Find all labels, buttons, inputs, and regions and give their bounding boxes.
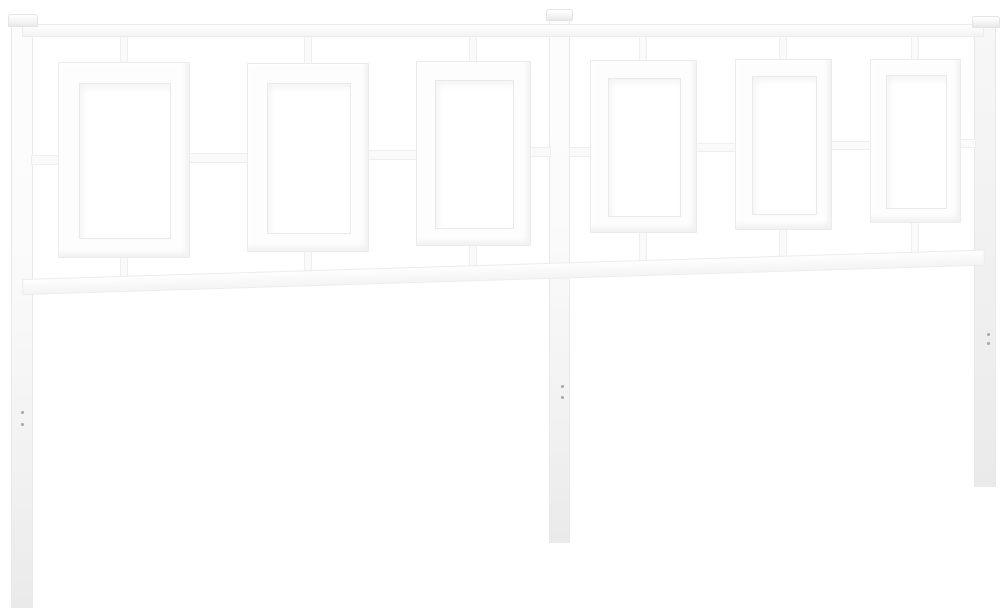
- mid-link-post-to-frame-1: [31, 155, 60, 165]
- bottom-link-frame-6: [911, 221, 919, 254]
- frame-1: [58, 62, 190, 258]
- frame-3-opening: [435, 80, 514, 229]
- center-post-cap: [546, 9, 573, 21]
- frame-5: [735, 59, 832, 230]
- top-link-frame-6: [911, 35, 919, 62]
- left-leg-screw-hole-2: [21, 423, 24, 426]
- center-leg-screw-hole-2: [561, 396, 564, 399]
- frame-1-opening: [79, 83, 171, 239]
- right-post-cap: [972, 16, 1000, 28]
- bottom-link-frame-5: [779, 228, 787, 259]
- frame-4-opening: [608, 78, 681, 217]
- mid-link-frame-5-to-6: [830, 141, 872, 150]
- top-link-frame-4: [639, 35, 647, 63]
- left-post-cap: [8, 14, 38, 27]
- frame-2-opening: [267, 83, 351, 234]
- left-leg-screw-hole-1: [21, 411, 24, 414]
- center-post-leg: [549, 20, 570, 543]
- right-leg-screw-hole-1: [987, 333, 990, 336]
- mid-link-frame-2-to-3: [367, 150, 418, 160]
- top-link-frame-2: [304, 35, 312, 66]
- frame-6-opening: [886, 75, 947, 209]
- top-link-frame-5: [779, 35, 787, 62]
- bottom-link-frame-4: [639, 231, 647, 263]
- mid-link-frame-1-to-2: [188, 153, 249, 163]
- left-post-leg: [11, 25, 33, 608]
- frame-4: [590, 60, 697, 233]
- mid-link-frame-6-to-post: [959, 139, 976, 148]
- headboard-product-photo: [0, 0, 1003, 614]
- frame-5-opening: [752, 76, 817, 215]
- top-link-frame-3: [469, 35, 477, 64]
- top-link-frame-1: [120, 35, 128, 65]
- mid-link-post-to-frame-4: [569, 147, 592, 157]
- mid-link-frame-3-to-post: [529, 147, 551, 157]
- center-leg-screw-hole-1: [561, 385, 564, 388]
- top-rail: [22, 24, 984, 37]
- frame-3: [416, 61, 531, 246]
- right-leg-screw-hole-2: [987, 342, 990, 345]
- frame-2: [247, 63, 369, 252]
- mid-link-frame-4-to-5: [695, 143, 737, 152]
- frame-6: [870, 59, 961, 223]
